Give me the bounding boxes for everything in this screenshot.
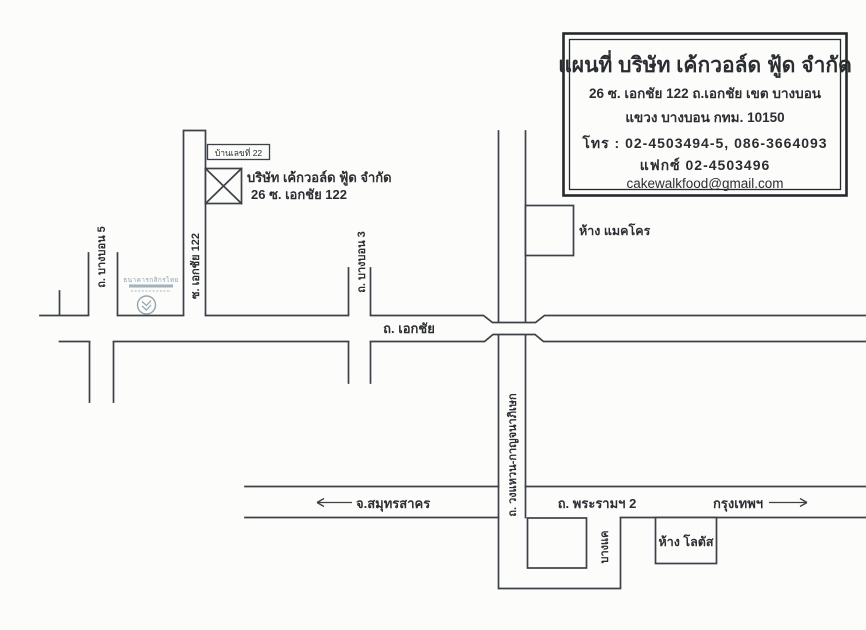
road-label-bang-khae: บางแค [599, 531, 611, 564]
info-address-line1: 26 ซ. เอกชัย 122 ถ.เอกชัย เขต บางบอน [589, 86, 822, 101]
info-email: cakewalkfood@gmail.com [626, 176, 783, 191]
info-address-line2: แขวง บางบอน กทม. 10150 [625, 110, 784, 125]
road-label-wong-waen: ถ. วงแหวน-กาญจนาภิเษก [506, 393, 519, 517]
road-ekachai [40, 316, 866, 342]
house-number-box: บ้านเลขที่ 22 [208, 145, 270, 160]
underpass-block [528, 518, 587, 568]
road-label-ekachai: ถ. เอกชัย [383, 321, 435, 336]
direction-west: จ.สมุทรสาคร [317, 496, 430, 512]
road-label-bang-bon-3: ถ. บางบอน 3 [356, 231, 368, 293]
company-address-label: 26 ซ. เอกชัย 122 [251, 187, 347, 202]
road-bang-bon-5 [60, 253, 118, 402]
company-location-marker [206, 169, 242, 204]
bank-name-label: ธนาคารกสิกรไทย [123, 276, 178, 284]
road-label-soi-ekachai-122: ซ. เอกชัย 122 [189, 233, 202, 299]
makro-label: ห้าง แมคโคร [579, 223, 651, 238]
makro-building: ห้าง แมคโคร [526, 206, 651, 256]
info-phone: โทร : 02-4503494-5, 086-3664093 [581, 134, 827, 151]
lotus-building: ห้าง โลตัส [656, 518, 717, 564]
road-label-bang-bon-5: ถ. บางบอน 5 [96, 226, 108, 288]
info-box: แผนที่ บริษัท เค้กวอล์ด ฟู้ด จำกัด 26 ซ.… [558, 34, 851, 196]
left-arrow-icon [317, 499, 352, 507]
direction-east: กรุงเทพฯ [713, 496, 807, 512]
map-page: บ้านเลขที่ 22 บริษัท เค้กวอล์ด ฟู้ด จำกั… [0, 0, 866, 630]
road-label-rama-2: ถ. พระรามฯ 2 [558, 496, 637, 511]
direction-label-samut-sakhon: จ.สมุทรสาคร [356, 496, 430, 512]
right-arrow-icon [769, 499, 807, 507]
lotus-label: ห้าง โลตัส [659, 534, 714, 549]
company-label: บริษัท เค้กวอล์ด ฟู้ด จำกัด 26 ซ. เอกชัย… [247, 170, 392, 202]
info-fax: แฟกซ์ 02-4503496 [640, 157, 771, 173]
house-number-label: บ้านเลขที่ 22 [215, 147, 263, 158]
info-title: แผนที่ บริษัท เค้กวอล์ด ฟู้ด จำกัด [558, 49, 851, 79]
bank-bird-icon [142, 301, 151, 311]
bank-logo-bar [129, 285, 173, 288]
company-name-label: บริษัท เค้กวอล์ด ฟู้ด จำกัด [247, 170, 392, 186]
map-canvas: บ้านเลขที่ 22 บริษัท เค้กวอล์ด ฟู้ด จำกั… [0, 0, 866, 630]
kasikorn-bank-landmark: ธนาคารกสิกรไทย [123, 276, 178, 314]
direction-label-bangkok: กรุงเทพฯ [713, 496, 763, 512]
